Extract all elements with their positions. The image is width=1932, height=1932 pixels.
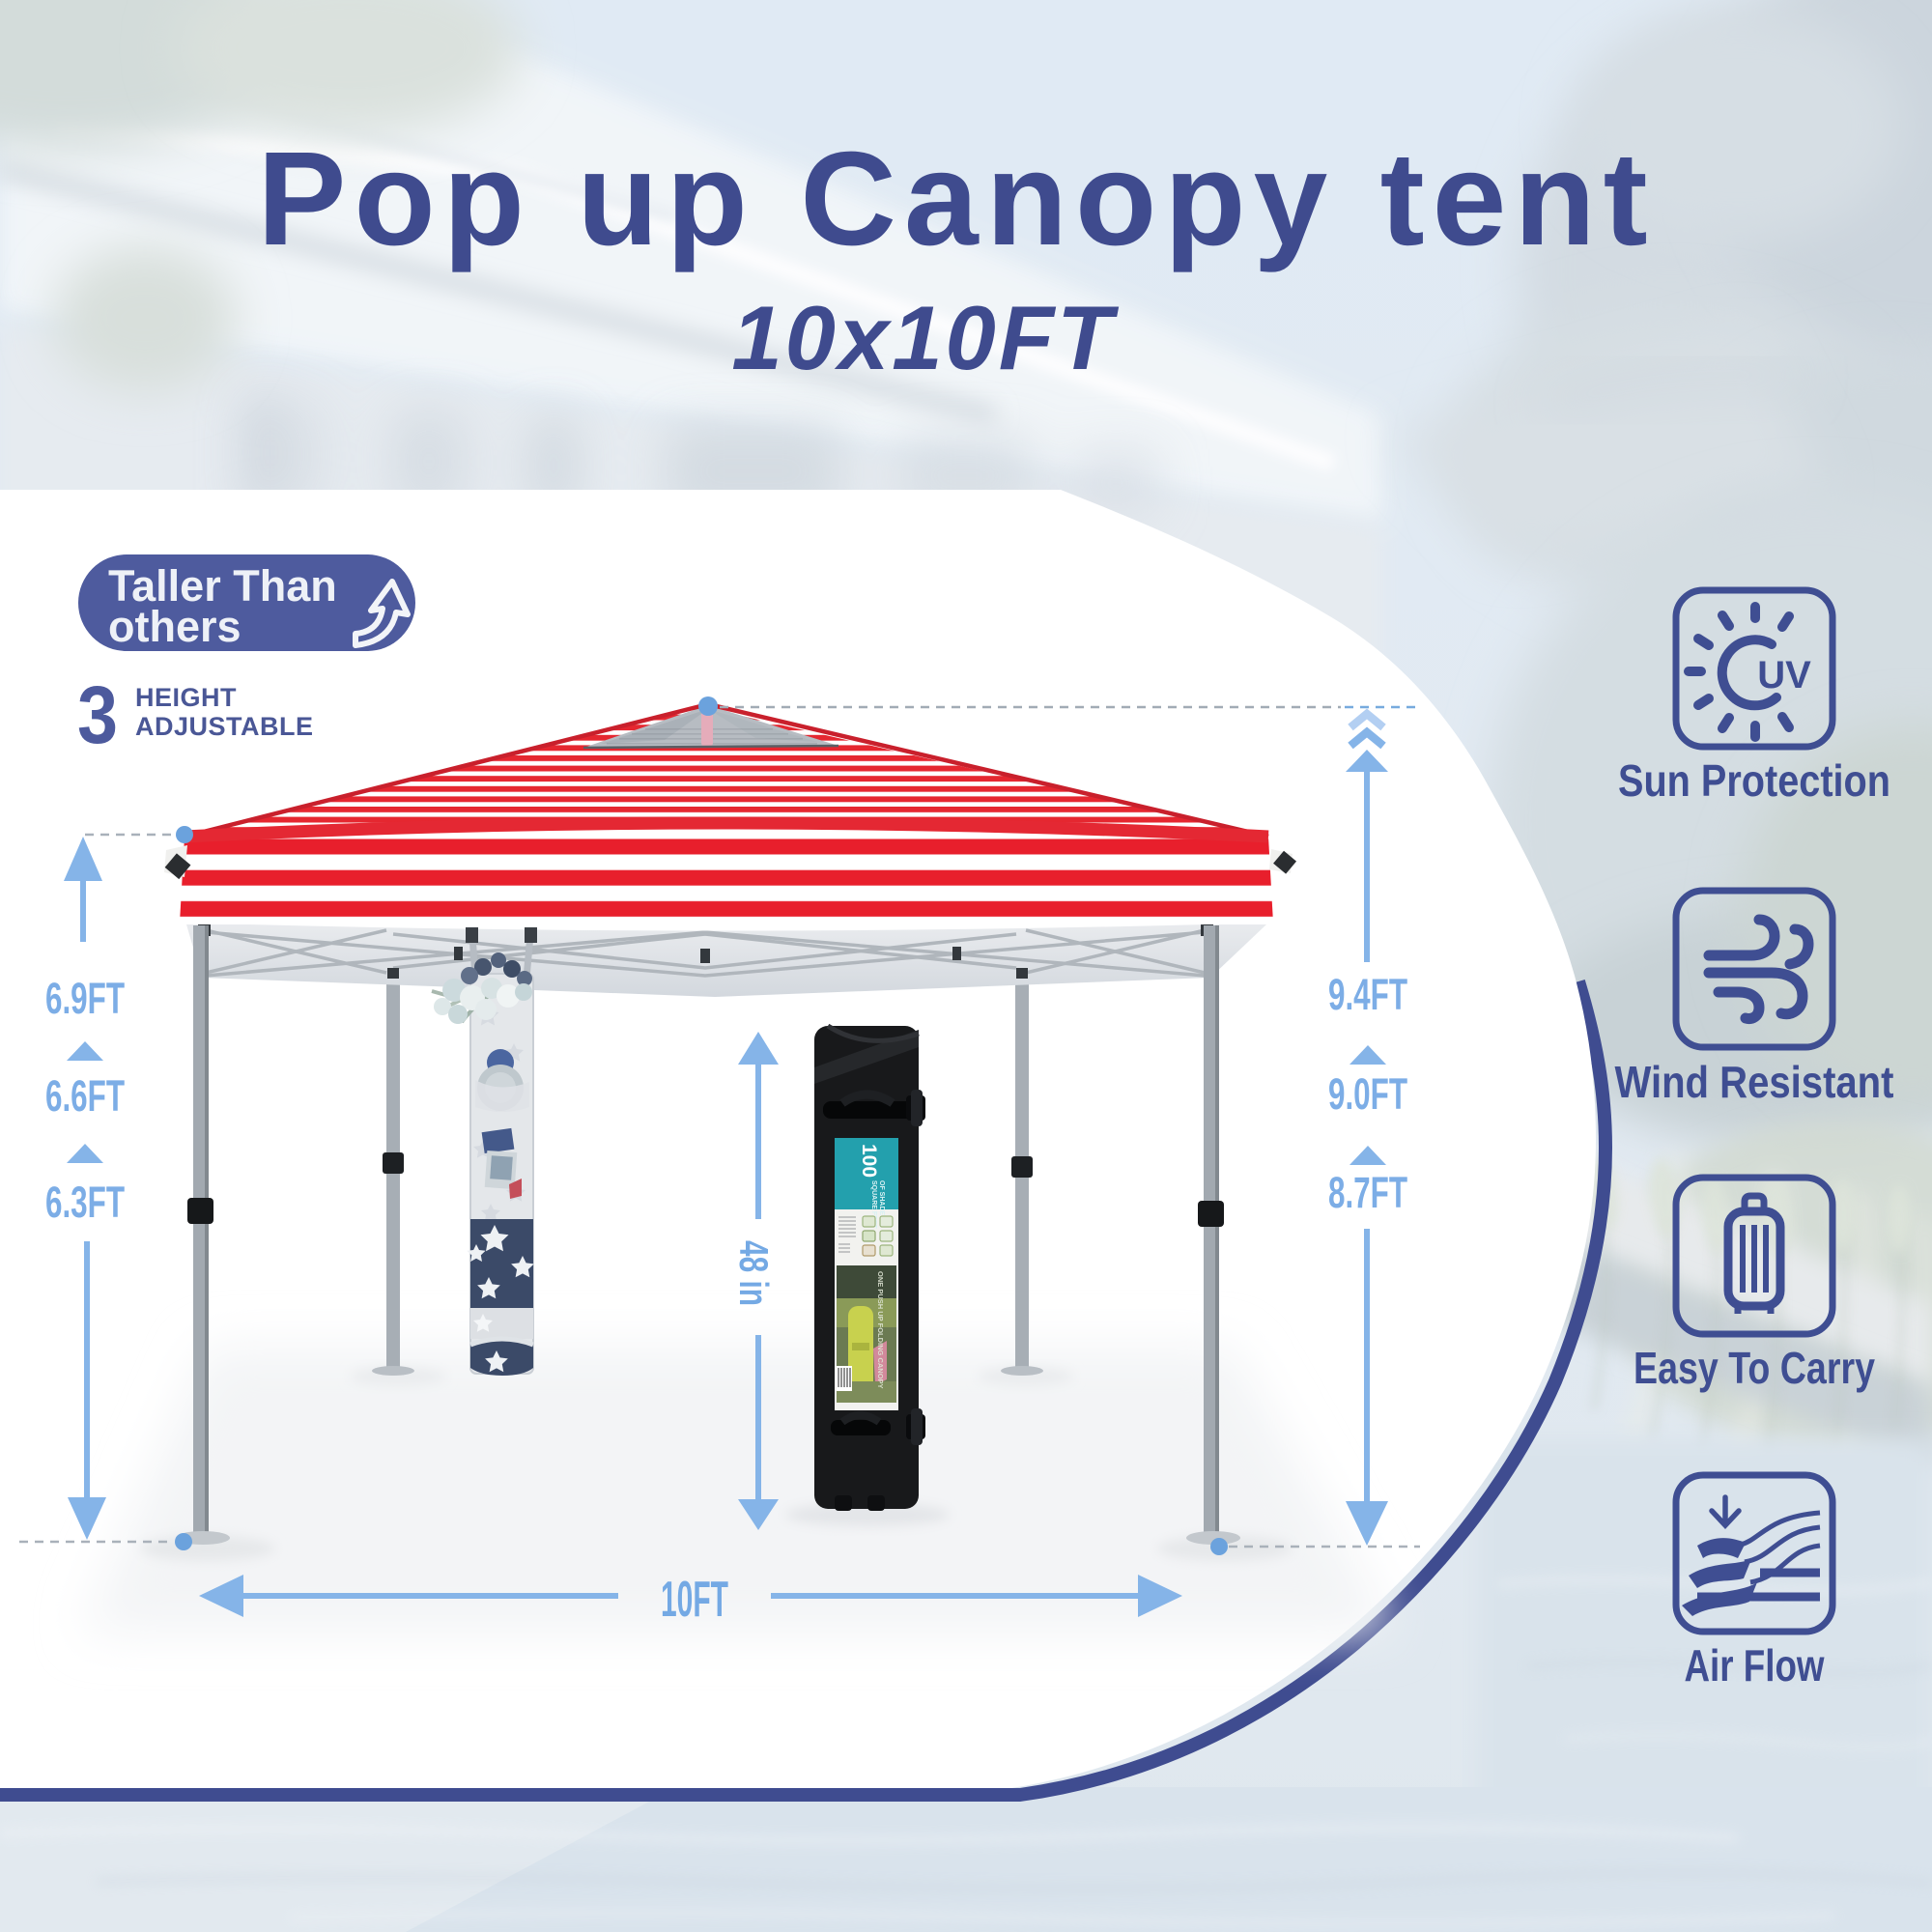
svg-text:Sun Protection: Sun Protection: [1618, 755, 1890, 806]
svg-text:OF SHADE: OF SHADE: [878, 1180, 885, 1216]
svg-text:6.9FT: 6.9FT: [45, 974, 125, 1023]
svg-text:10FT: 10FT: [661, 1572, 728, 1628]
svg-text:Air Flow: Air Flow: [1685, 1640, 1825, 1690]
svg-text:UV: UV: [1757, 654, 1811, 696]
svg-text:Pop up Canopy tent: Pop up Canopy tent: [257, 125, 1655, 273]
svg-text:6.3FT: 6.3FT: [45, 1178, 125, 1227]
svg-text:6.6FT: 6.6FT: [45, 1071, 125, 1121]
svg-text:9.4FT: 9.4FT: [1328, 970, 1407, 1019]
svg-text:others: others: [108, 602, 241, 651]
svg-text:10x10FT: 10x10FT: [731, 287, 1120, 388]
svg-text:9.0FT: 9.0FT: [1328, 1069, 1407, 1119]
svg-text:48 in: 48 in: [731, 1240, 777, 1306]
svg-text:HEIGHT: HEIGHT: [135, 683, 237, 712]
svg-text:100: 100: [858, 1144, 880, 1178]
svg-text:3: 3: [77, 669, 118, 760]
svg-text:ADJUSTABLE: ADJUSTABLE: [135, 712, 314, 741]
svg-text:8.7FT: 8.7FT: [1328, 1168, 1407, 1217]
svg-text:Easy To Carry: Easy To Carry: [1634, 1343, 1875, 1393]
svg-text:ONE PUSH UP FOLDING CANOPY: ONE PUSH UP FOLDING CANOPY: [876, 1271, 885, 1389]
svg-text:Wind Resistant: Wind Resistant: [1615, 1057, 1894, 1107]
